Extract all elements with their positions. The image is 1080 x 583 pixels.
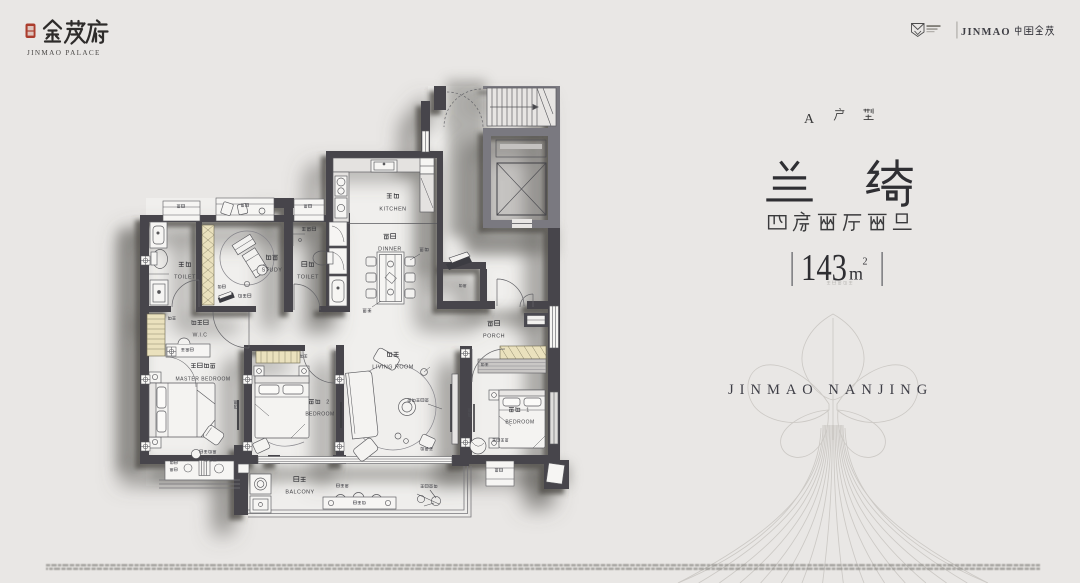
svg-text:DINNER: DINNER (378, 247, 402, 253)
svg-text:W.I.C: W.I.C (193, 333, 208, 339)
svg-text:2: 2 (326, 400, 330, 406)
svg-text:BEDROOM: BEDROOM (505, 420, 534, 426)
svg-text:TOILET: TOILET (174, 275, 196, 281)
svg-text:LIVING ROOM: LIVING ROOM (372, 365, 413, 371)
svg-text:STUDY: STUDY (262, 268, 283, 274)
svg-text:MASTER BEDROOM: MASTER BEDROOM (175, 377, 230, 383)
svg-text:143: 143 (801, 247, 847, 289)
svg-text:JINMAO: JINMAO (961, 27, 1011, 38)
svg-text:BALCONY: BALCONY (285, 490, 314, 496)
svg-text:A: A (804, 112, 815, 127)
svg-text:2: 2 (863, 257, 868, 268)
svg-text:PORCH: PORCH (483, 334, 505, 340)
svg-text:KITCHEN: KITCHEN (379, 207, 406, 213)
svg-text:TOILET: TOILET (297, 275, 319, 281)
svg-text:1: 1 (526, 408, 530, 414)
svg-text:JINMAO PALACE: JINMAO PALACE (27, 49, 101, 57)
svg-text:BEDROOM: BEDROOM (305, 412, 334, 418)
svg-text:m: m (849, 264, 863, 284)
svg-text:JINMAO NANJING: JINMAO NANJING (728, 382, 933, 398)
